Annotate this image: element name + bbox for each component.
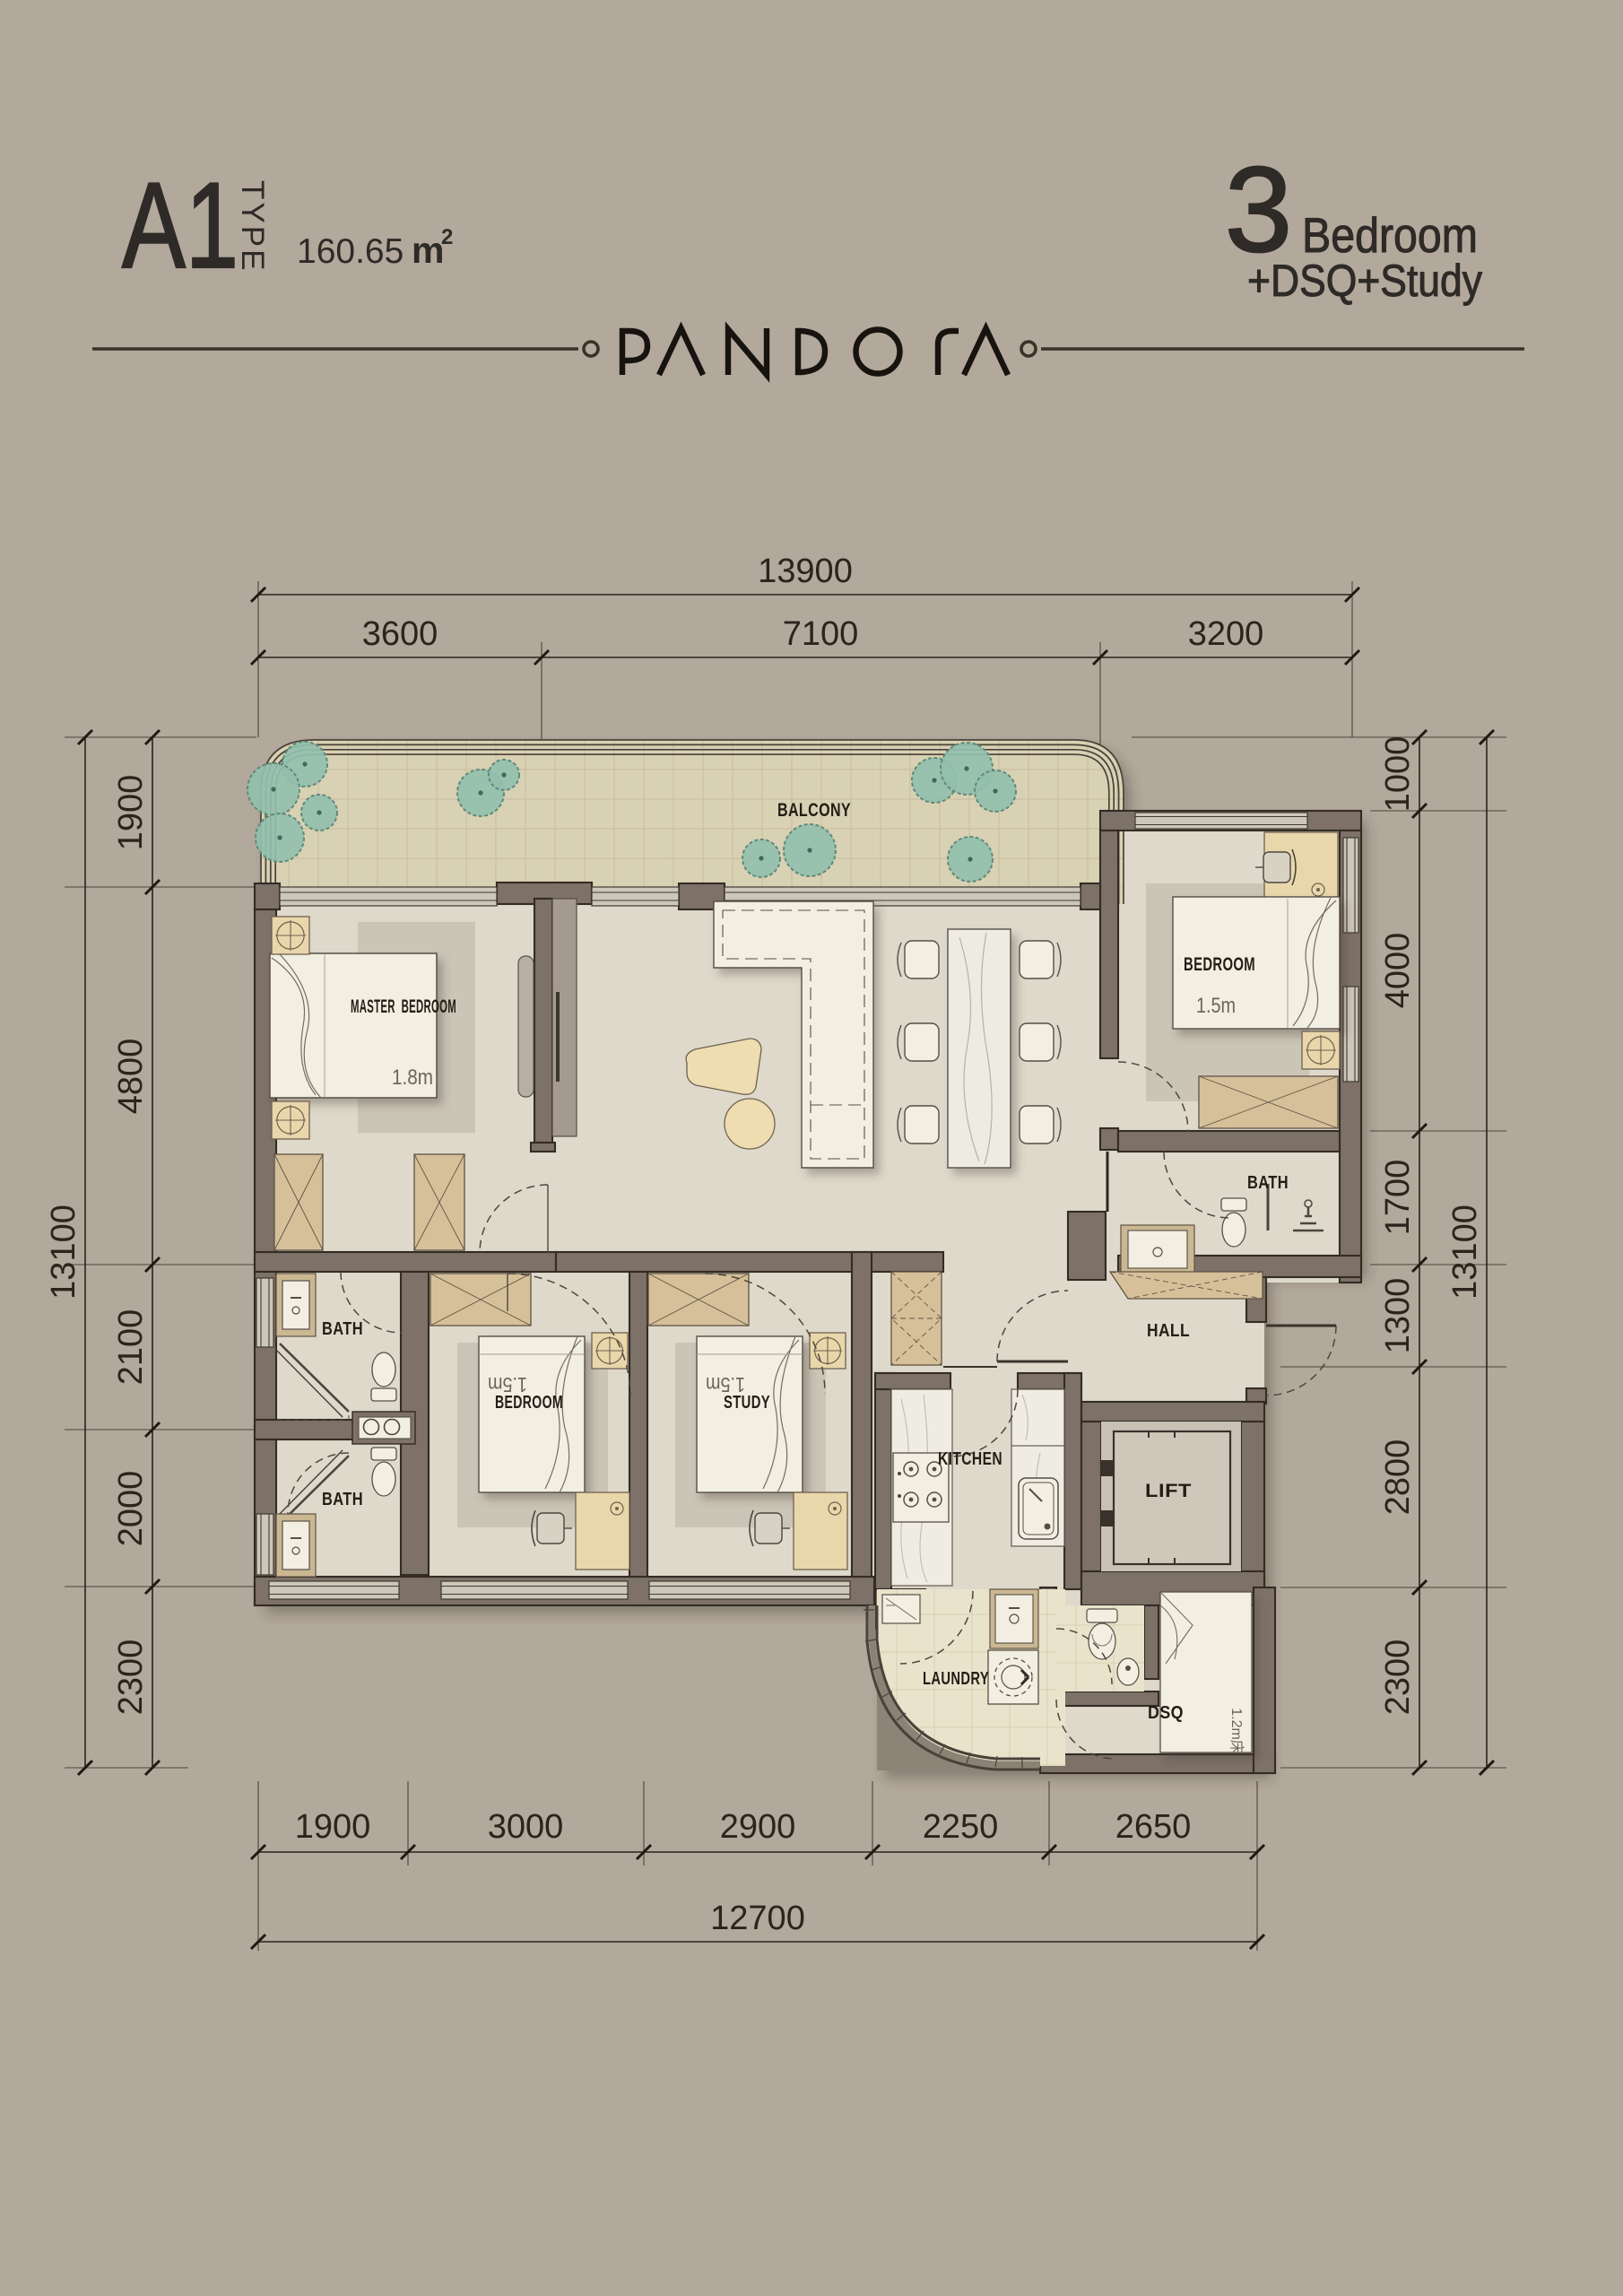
- svg-text:2250: 2250: [923, 1808, 999, 1846]
- svg-text:KITCHEN: KITCHEN: [938, 1449, 1002, 1469]
- svg-text:1900: 1900: [295, 1808, 371, 1846]
- svg-text:BATH: BATH: [322, 1319, 363, 1339]
- svg-text:DSQ: DSQ: [1148, 1703, 1184, 1723]
- svg-text:12700: 12700: [710, 1900, 805, 1937]
- svg-text:13900: 13900: [758, 552, 853, 590]
- svg-text:1.5m: 1.5m: [1196, 994, 1236, 1018]
- svg-text:2100: 2100: [112, 1309, 150, 1386]
- svg-text:LIFT: LIFT: [1145, 1481, 1192, 1501]
- svg-text:MASTER BEDROOM: MASTER BEDROOM: [351, 996, 456, 1017]
- svg-text:3600: 3600: [362, 615, 438, 653]
- svg-text:4800: 4800: [112, 1039, 150, 1115]
- svg-text:1000: 1000: [1379, 736, 1417, 813]
- svg-text:1.8m: 1.8m: [392, 1065, 433, 1090]
- svg-text:1900: 1900: [112, 775, 150, 851]
- svg-text:2000: 2000: [112, 1471, 150, 1547]
- svg-text:1.5m: 1.5m: [706, 1373, 745, 1396]
- svg-text:1.5m: 1.5m: [488, 1373, 527, 1396]
- svg-text:3000: 3000: [488, 1808, 564, 1846]
- svg-text:4000: 4000: [1379, 933, 1417, 1009]
- svg-text:2: 2: [441, 225, 453, 249]
- svg-text:+DSQ+Study: +DSQ+Study: [1247, 256, 1482, 306]
- svg-text:A1: A1: [122, 157, 239, 293]
- svg-text:1700: 1700: [1379, 1160, 1417, 1236]
- svg-text:3200: 3200: [1188, 615, 1264, 653]
- svg-text:HALL: HALL: [1147, 1321, 1190, 1341]
- svg-text:2300: 2300: [1379, 1639, 1417, 1716]
- svg-text:13100: 13100: [1446, 1205, 1484, 1300]
- svg-text:BATH: BATH: [322, 1490, 363, 1509]
- svg-text:7100: 7100: [783, 615, 859, 653]
- svg-text:2900: 2900: [720, 1808, 796, 1846]
- svg-text:BALCONY: BALCONY: [777, 800, 851, 821]
- svg-text:2300: 2300: [112, 1639, 150, 1716]
- svg-text:13100: 13100: [45, 1205, 82, 1300]
- svg-text:160.65: 160.65: [297, 232, 404, 271]
- svg-text:BATH: BATH: [1247, 1173, 1289, 1193]
- svg-text:LAUNDRY: LAUNDRY: [923, 1669, 989, 1689]
- svg-text:Bedroom: Bedroom: [1302, 207, 1478, 263]
- svg-text:1.2m床: 1.2m床: [1228, 1708, 1245, 1754]
- svg-text:2650: 2650: [1115, 1808, 1192, 1846]
- svg-text:TYPE: TYPE: [235, 180, 270, 273]
- svg-text:2800: 2800: [1379, 1439, 1417, 1516]
- svg-text:m: m: [412, 230, 444, 271]
- svg-text:BEDROOM: BEDROOM: [1184, 954, 1255, 975]
- svg-text:1300: 1300: [1379, 1278, 1417, 1354]
